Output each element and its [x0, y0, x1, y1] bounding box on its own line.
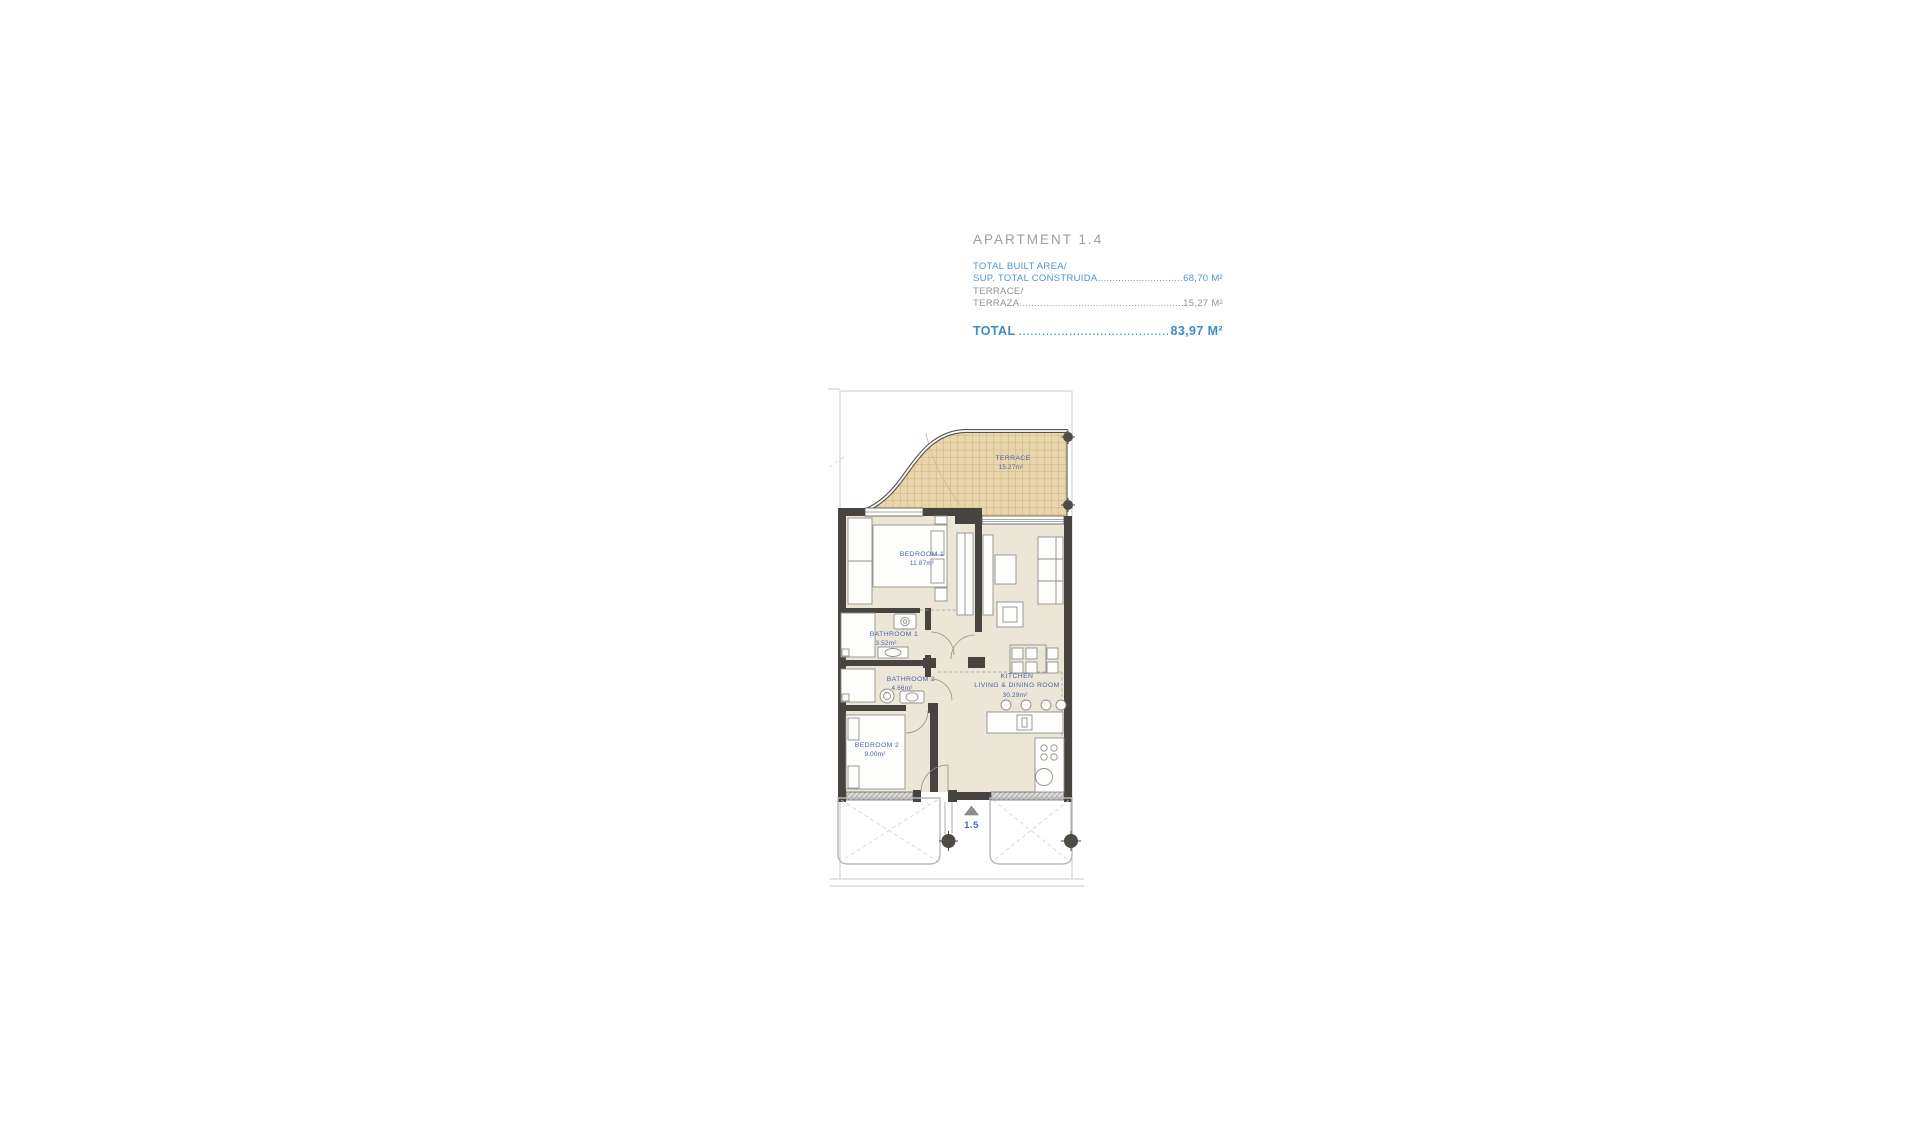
terrace-area: 15.27m²	[999, 464, 1024, 471]
terrace-area-row: TERRACE/ TERRAZA .......................…	[973, 286, 1223, 311]
bedroom1-label: BEDROOM 1	[900, 551, 944, 558]
bathroom2-label: BATHROOM 2	[887, 676, 935, 683]
built-area-leader: ........................................…	[1098, 273, 1184, 285]
built-area-row: TOTAL BUILT AREA/ SUP. TOTAL CONSTRUIDA …	[973, 261, 1223, 286]
bedroom2-area: 9.00m²	[864, 751, 885, 758]
kitchen-area: 30.29m²	[1003, 692, 1028, 699]
built-area-value: 68,70 M²	[1183, 273, 1223, 285]
adjacent-unit-marker: 1.5	[964, 806, 979, 831]
terrace-label-es: TERRAZA	[973, 298, 1019, 310]
lower-terraces	[838, 798, 1081, 864]
terrace-label-en: TERRACE/	[973, 286, 1223, 298]
summary-panel: APARTMENT 1.4 TOTAL BUILT AREA/ SUP. TOT…	[973, 232, 1223, 338]
bedroom2-label: BEDROOM 2	[855, 742, 899, 749]
terrace-label: TERRACE	[995, 455, 1030, 462]
terrace-leader: ........................................…	[1019, 298, 1183, 310]
site-reference-line	[828, 457, 844, 468]
built-area-label-es: SUP. TOTAL CONSTRUIDA	[973, 273, 1098, 285]
structure-columns	[939, 831, 1081, 851]
bedroom1-area: 11.87m²	[910, 560, 934, 567]
bathroom2-area: 4.66m²	[891, 685, 912, 692]
floor-plan: TERRACE 15.27m²	[828, 385, 1088, 905]
total-leader: ........................................…	[1019, 324, 1171, 338]
total-label: TOTAL	[973, 324, 1016, 338]
kitchen-label2: LIVING & DINING ROOM	[974, 682, 1059, 689]
kitchen-label: KITCHEN	[1001, 673, 1034, 680]
terrace-value: 15,27 M²	[1183, 298, 1223, 310]
bathroom1-label: BATHROOM 1	[870, 631, 918, 638]
built-area-label-en: TOTAL BUILT AREA/	[973, 261, 1223, 273]
bathroom1-area: 3.52m²	[875, 640, 896, 647]
total-value: 83,97 M²	[1170, 324, 1223, 338]
apartment-title: APARTMENT 1.4	[973, 232, 1223, 247]
page: APARTMENT 1.4 TOTAL BUILT AREA/ SUP. TOT…	[0, 0, 1920, 1140]
total-row: TOTAL ..................................…	[973, 324, 1223, 338]
floor-plan-svg: TERRACE 15.27m²	[828, 385, 1088, 905]
up-arrow-icon	[965, 806, 979, 815]
adjacent-unit-label: 1.5	[964, 820, 979, 831]
